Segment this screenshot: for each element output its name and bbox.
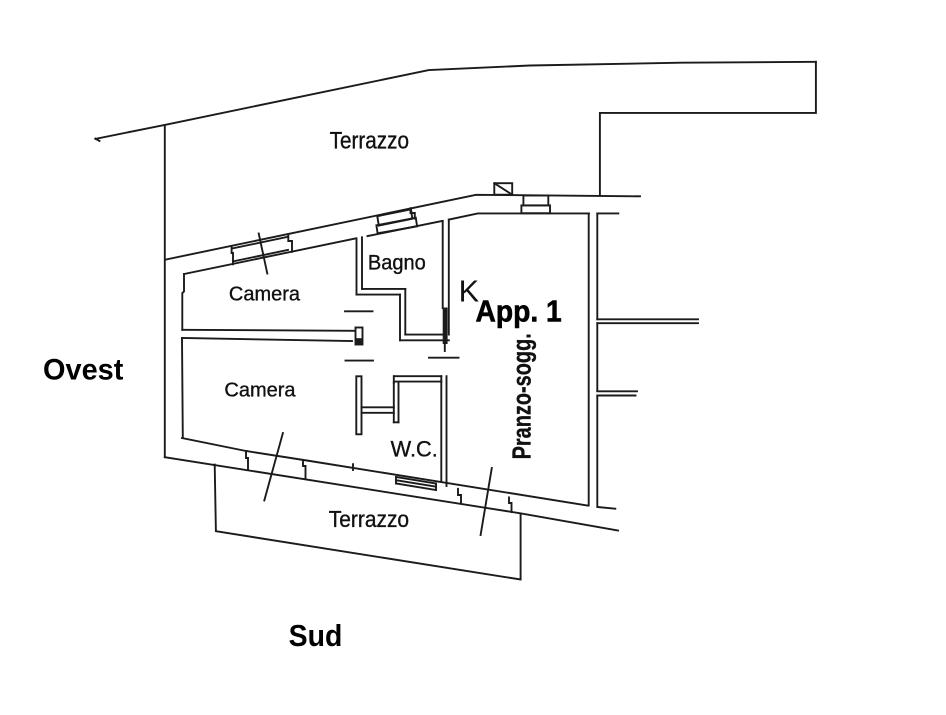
svg-text:W.C.: W.C.: [391, 436, 438, 461]
svg-text:Sud: Sud: [289, 619, 343, 653]
svg-text:Bagno: Bagno: [368, 251, 426, 275]
svg-text:Pranzo-sogg.: Pranzo-sogg.: [507, 333, 536, 459]
svg-text:Camera: Camera: [229, 284, 301, 306]
svg-text:Terrazzo: Terrazzo: [329, 506, 409, 532]
svg-text:Camera: Camera: [224, 379, 296, 401]
svg-text:Ovest: Ovest: [43, 354, 124, 386]
svg-text:Terrazzo: Terrazzo: [330, 127, 409, 154]
svg-text:App. 1: App. 1: [475, 294, 561, 328]
